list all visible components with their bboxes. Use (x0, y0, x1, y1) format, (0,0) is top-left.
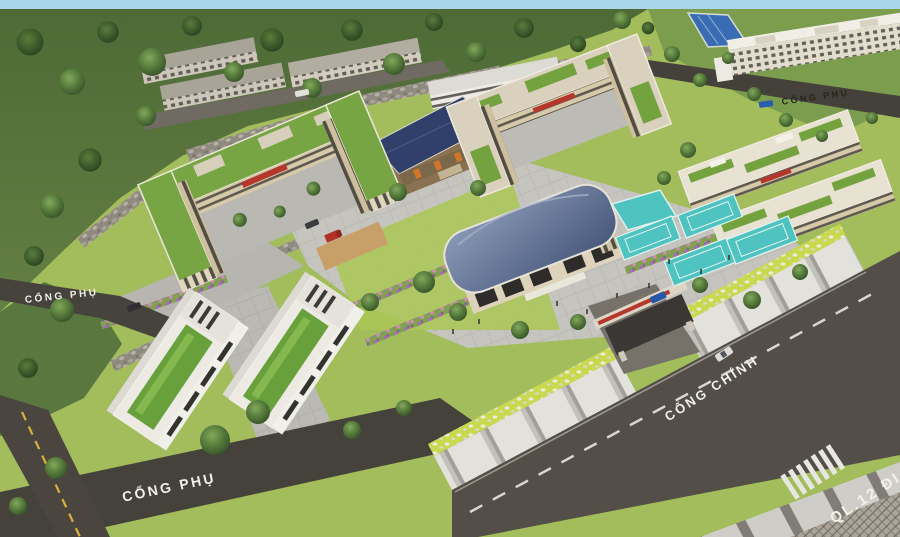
tree (792, 264, 808, 280)
tree (78, 148, 101, 171)
tree (182, 16, 202, 36)
tree (692, 277, 708, 293)
sky-strip (0, 0, 900, 9)
tree (466, 42, 486, 62)
tree (570, 314, 586, 330)
tree (200, 425, 230, 455)
tree (642, 22, 655, 35)
tree (866, 112, 878, 124)
tree (413, 271, 435, 293)
campus-aerial-render: CỔNG PHỤ CỔNG PHỤ CỔNG PHỤ CỔNG CHÍNH QL… (0, 0, 900, 537)
tree (260, 28, 283, 51)
tree (425, 13, 443, 31)
tree (743, 291, 761, 309)
tree (97, 21, 119, 43)
tree (389, 183, 407, 201)
tree (383, 53, 405, 75)
tree (138, 48, 166, 76)
tree (664, 46, 680, 62)
tree (18, 358, 38, 378)
tree (657, 171, 671, 185)
tree (514, 18, 534, 38)
tree (246, 400, 270, 424)
tree (449, 303, 467, 321)
tree (136, 106, 156, 126)
tree (396, 400, 412, 416)
tree (570, 36, 586, 52)
tree (343, 421, 361, 439)
tree (45, 457, 67, 479)
tree (59, 69, 85, 95)
tree (680, 142, 696, 158)
tree (341, 19, 363, 41)
tree (470, 180, 486, 196)
tree (40, 194, 64, 218)
tree (747, 87, 761, 101)
tree (17, 29, 44, 56)
tree (722, 52, 734, 64)
tree (779, 113, 793, 127)
tree (816, 130, 828, 142)
tree (24, 246, 44, 266)
tree (511, 321, 529, 339)
tree (613, 11, 631, 29)
tree (361, 293, 379, 311)
tree (9, 497, 27, 515)
tree (224, 62, 244, 82)
render-canvas: CỔNG PHỤ CỔNG PHỤ CỔNG PHỤ CỔNG CHÍNH QL… (0, 0, 900, 537)
tree (693, 73, 707, 87)
